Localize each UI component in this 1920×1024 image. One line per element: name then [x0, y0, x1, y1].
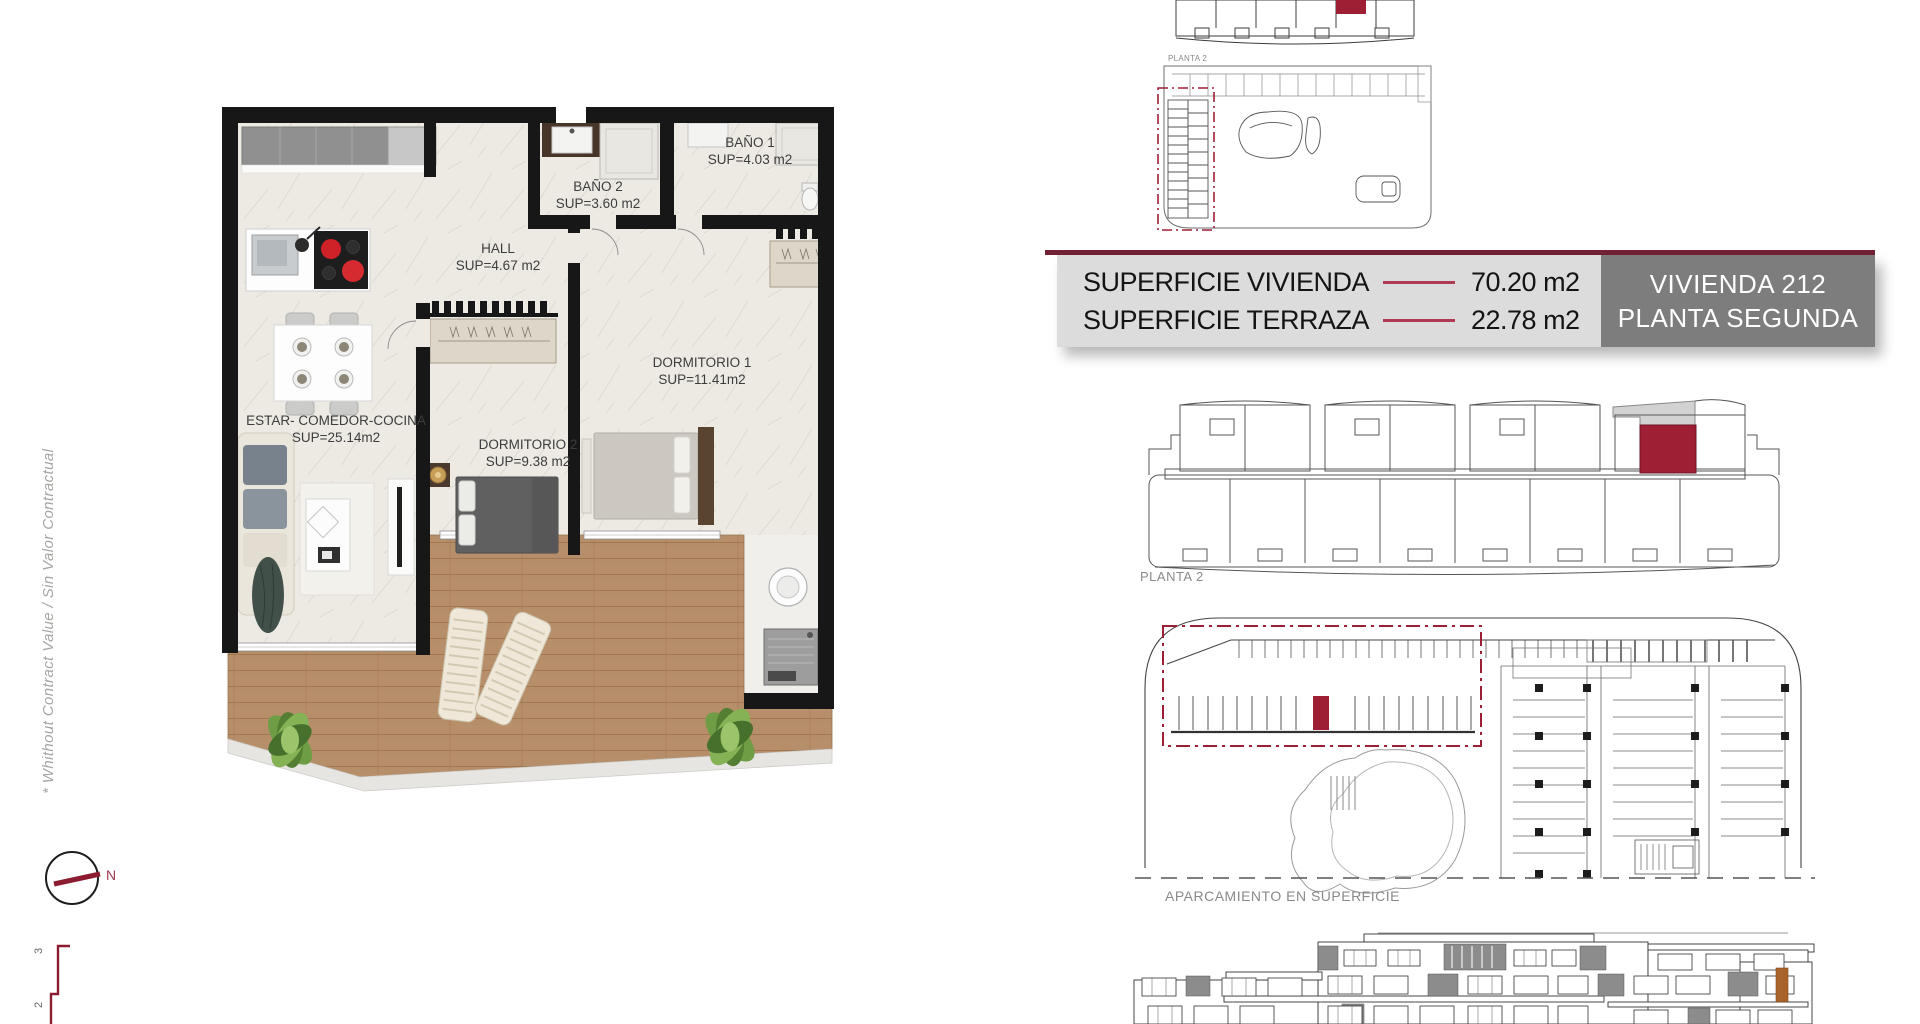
room-sup-bath1: SUP=4.03 m2 [708, 152, 792, 167]
orange-facade-accent [1776, 968, 1788, 1002]
rule-line [1383, 319, 1455, 322]
coffee-table [306, 499, 350, 571]
tv-stand [388, 479, 414, 575]
rule-line [1383, 281, 1455, 284]
floor-key-label: PLANTA 2 [1140, 569, 1204, 584]
apartment-floor-plan: ESTAR- COMEDOR-COCINA SUP=25.14m2 HALL S… [210, 95, 850, 825]
room-label-bedroom2: DORMITORIO 2 [479, 437, 578, 452]
room-sup-bath2: SUP=3.60 m2 [556, 196, 640, 211]
unit-number: VIVIENDA 212 [1650, 267, 1827, 301]
room-sup-bedroom2: SUP=9.38 m2 [486, 454, 570, 469]
kitchen-counter [242, 127, 436, 173]
highlighted-unit-site [1336, 0, 1366, 14]
kitchen-island [246, 227, 370, 291]
room-sup-hall: SUP=4.67 m2 [456, 258, 540, 273]
room-sup-bedroom1: SUP=11.41m2 [658, 372, 745, 387]
surface-info-panel: SUPERFICIE VIVIENDA 70.20 m2 SUPERFICIE … [1057, 255, 1875, 347]
site-plan-diagram: PLANTA 2 [1150, 0, 1440, 240]
highlighted-unit-key [1640, 425, 1696, 473]
panel-accent-bar [1045, 250, 1875, 255]
sofa [238, 433, 294, 633]
structure-columns [1535, 684, 1789, 878]
north-compass: N [40, 848, 130, 908]
scale-bar: 3 2 [30, 936, 78, 1024]
surface-value: 70.20 m2 [1471, 267, 1580, 298]
room-label-bedroom1: DORMITORIO 1 [653, 355, 752, 370]
site-plan-label: PLANTA 2 [1168, 54, 1207, 63]
surface-label: SUPERFICIE TERRAZA [1083, 305, 1379, 336]
surface-row: SUPERFICIE VIVIENDA 70.20 m2 [1083, 265, 1601, 299]
terrace-gray-area [1613, 401, 1695, 425]
disclaimer-text: * Whithout Contract Value / Sin Valor Co… [40, 449, 57, 794]
north-label: N [106, 867, 116, 883]
plan-sheet: ESTAR- COMEDOR-COCINA SUP=25.14m2 HALL S… [0, 0, 1920, 1024]
room-label-hall: HALL [481, 241, 515, 256]
surface-row: SUPERFICIE TERRAZA 22.78 m2 [1083, 303, 1601, 337]
surface-value: 22.78 m2 [1471, 305, 1580, 336]
room-label-living: ESTAR- COMEDOR-COCINA [246, 413, 426, 428]
scale-mark-3: 3 [33, 948, 45, 954]
dining-table [274, 313, 372, 415]
room-label-bath1: BAÑO 1 [725, 135, 775, 150]
parking-plan: APARCAMIENTO EN SUPERFICIE [1135, 600, 1815, 910]
building-elevation [1128, 932, 1818, 1024]
floor-key-plan: PLANTA 2 [1135, 385, 1795, 590]
surface-rows: SUPERFICIE VIVIENDA 70.20 m2 SUPERFICIE … [1057, 255, 1601, 347]
parking-plan-label: APARCAMIENTO EN SUPERFICIE [1165, 888, 1400, 904]
room-sup-living: SUP=25.14m2 [292, 430, 380, 445]
scale-mark-2: 2 [33, 1002, 45, 1008]
highlighted-parking-space [1313, 696, 1329, 730]
unit-identifier-box: VIVIENDA 212 PLANTA SEGUNDA [1601, 255, 1875, 347]
surface-label: SUPERFICIE VIVIENDA [1083, 267, 1379, 298]
room-label-bath2: BAÑO 2 [573, 179, 623, 194]
unit-floor: PLANTA SEGUNDA [1618, 301, 1859, 335]
